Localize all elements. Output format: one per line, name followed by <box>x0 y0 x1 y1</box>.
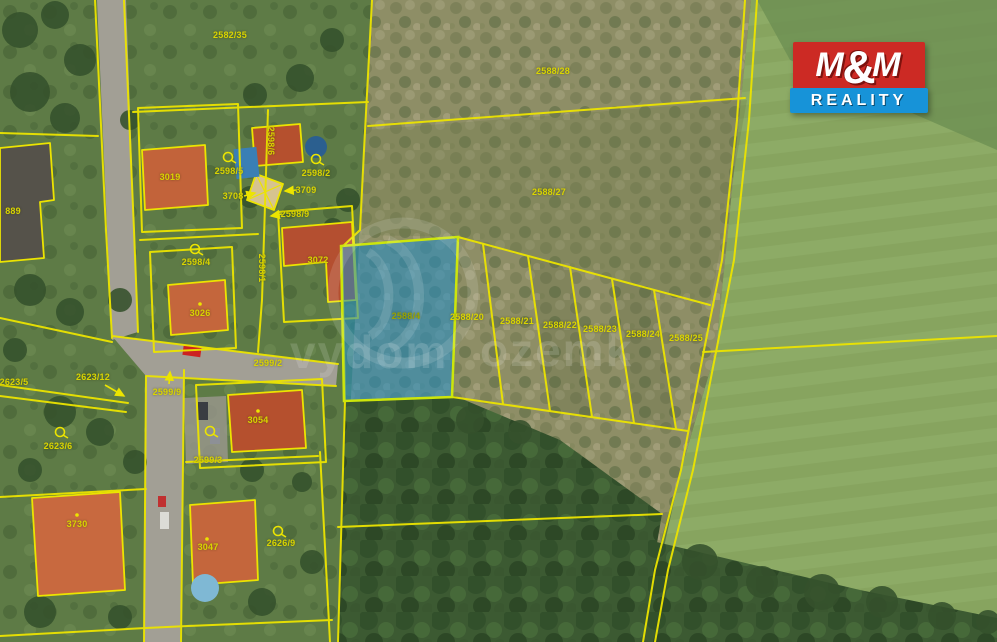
watermark-text-2: ozemk <box>480 324 633 376</box>
building-3019 <box>142 145 208 210</box>
building-3047 <box>190 500 258 585</box>
building-small-north <box>252 124 303 166</box>
building-3026 <box>168 280 228 335</box>
mm-reality-logo: M & M & REALITY <box>793 42 925 113</box>
pool-dome <box>191 574 219 602</box>
logo-ampersand: & <box>842 44 875 90</box>
watermark-text-1: vydom <box>290 326 448 378</box>
cadastral-map-viewport[interactable]: vydom ozemk 2582/352588/282588/272598/23… <box>0 0 997 642</box>
car-red-2 <box>158 496 166 507</box>
van-white <box>160 512 169 529</box>
logo-reality-text: REALITY <box>811 93 907 109</box>
building-point-symbol <box>198 302 202 306</box>
logo-m-right: M <box>872 48 902 82</box>
building-point-symbol <box>205 537 209 541</box>
car-dark <box>198 402 208 420</box>
building-point-symbol <box>75 513 79 517</box>
building-3730 <box>32 492 125 596</box>
building-point-symbol <box>256 409 260 413</box>
logo-m-left: M <box>815 48 845 82</box>
logo-red-band: M & M & <box>793 42 925 88</box>
building-3054 <box>228 390 306 452</box>
label-arrow <box>285 190 297 191</box>
pool-rect <box>233 147 259 179</box>
label-arrow <box>169 372 170 384</box>
